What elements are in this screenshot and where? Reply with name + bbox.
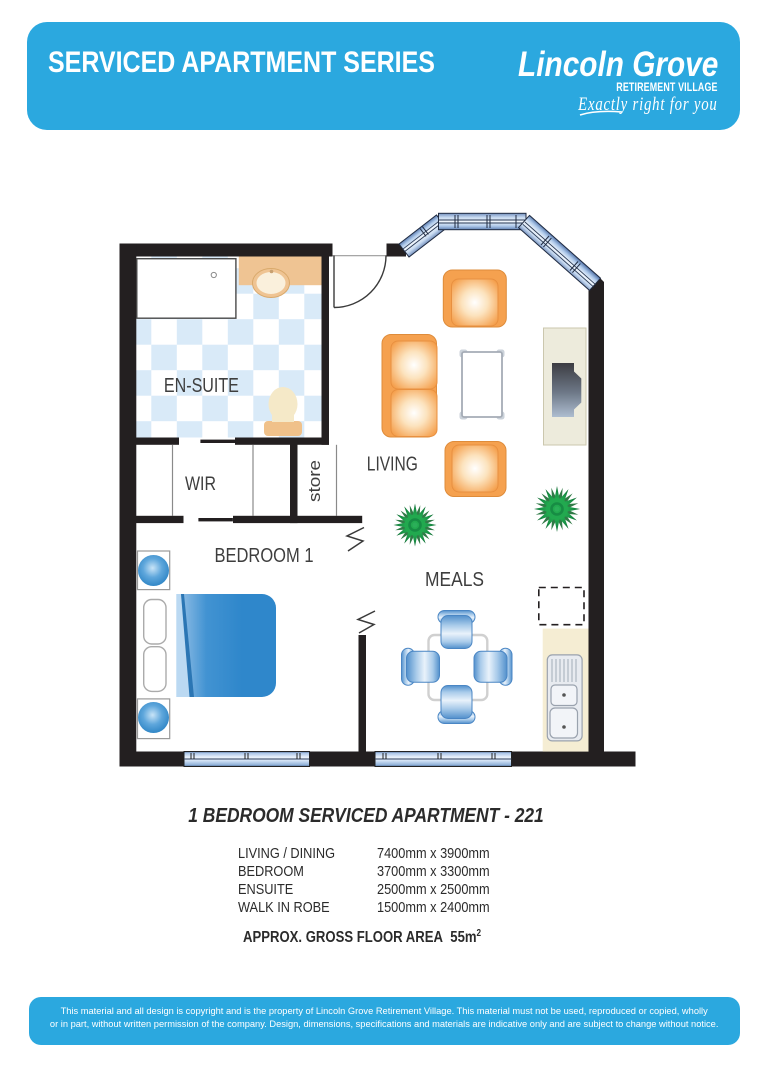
svg-text:MEALS: MEALS: [425, 569, 484, 591]
svg-text:BEDROOM 1: BEDROOM 1: [215, 545, 314, 567]
svg-text:store: store: [305, 460, 324, 502]
svg-text:WIR: WIR: [185, 474, 216, 495]
svg-text:LIVING: LIVING: [367, 454, 418, 476]
svg-text:EN-SUITE: EN-SUITE: [164, 375, 239, 397]
